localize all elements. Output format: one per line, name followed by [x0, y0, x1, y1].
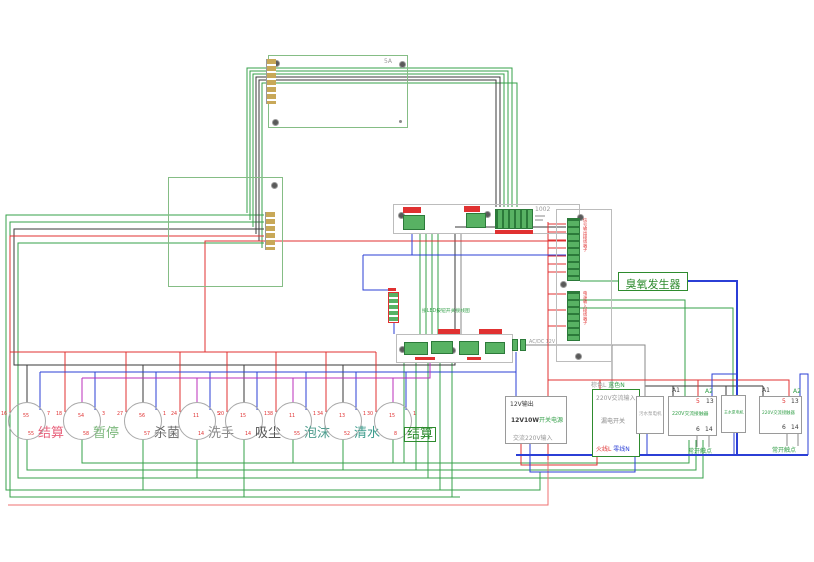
- breaker-name: 漏电开关: [601, 418, 625, 425]
- contactor-t14: 14: [791, 425, 799, 431]
- label-bar: [388, 288, 396, 291]
- pin-number: 15: [240, 414, 246, 419]
- leakage-breaker-box[interactable]: 棕色L 蓝色N 220V交流输入 漏电开关 火线L 零线N: [592, 389, 640, 457]
- button-jiesuan-2[interactable]: 30 15 1 8 结算: [367, 400, 431, 450]
- magenta-wires: [82, 363, 430, 402]
- psu-type: 开关电源: [539, 417, 563, 424]
- pin-number: 20: [218, 412, 224, 417]
- display-board[interactable]: 5A: [268, 55, 408, 128]
- pin-number: 16: [1, 412, 7, 417]
- terminal-strip-1-label: 信号输出接线端子: [582, 218, 586, 252]
- pin-number: 54: [78, 414, 84, 419]
- 12v-terminal-label: AC/DC 12V: [529, 340, 555, 345]
- pin-number: 15: [389, 414, 395, 419]
- main-control-board[interactable]: 1002: [393, 204, 580, 234]
- pin-header[interactable]: [265, 212, 275, 250]
- pin-number: 11: [289, 414, 295, 419]
- silk-mark: [535, 215, 545, 217]
- label-bar: [467, 357, 481, 360]
- contactor-t13: 13: [791, 399, 799, 405]
- pink-wires: [8, 460, 548, 505]
- contactor-a1-label: A1: [672, 388, 680, 394]
- button-label: 结算: [404, 427, 436, 442]
- screw-hole: [575, 353, 582, 360]
- breaker-live-label: 火线L: [596, 446, 611, 453]
- contactor-t6: 6: [782, 425, 786, 431]
- pin-number: 3: [102, 412, 105, 417]
- screw-hole: [560, 281, 567, 288]
- breaker-input-label: 220V交流输入: [596, 395, 636, 402]
- contactor-1-box[interactable]: A1 A2 5 13 220V交流接触器 6 14: [668, 396, 717, 436]
- pin-number: 55: [28, 432, 34, 437]
- contactor-t14: 14: [705, 427, 713, 433]
- pin-number: 13: [339, 414, 345, 419]
- ozone-generator-box[interactable]: 臭氧发生器: [618, 272, 688, 291]
- terminal-block[interactable]: [459, 341, 479, 355]
- contactor-2-box[interactable]: A1 A2 5 13 220V交流接触器 6 14: [759, 396, 802, 434]
- psu-input-label: 交流220V输入: [513, 435, 553, 442]
- pin-number: 14: [198, 432, 204, 437]
- pin-number: 27: [117, 412, 123, 417]
- contactor-t6: 6: [696, 427, 700, 433]
- terminal-strip-2[interactable]: [567, 291, 580, 341]
- pin-number: 55: [23, 414, 29, 419]
- contactor-t5: 5: [782, 399, 786, 405]
- terminal-strip-2-label: 电源输入接线端子: [582, 291, 586, 325]
- mid-connector[interactable]: [388, 292, 399, 323]
- pin-number: 38: [267, 412, 273, 417]
- terminal-board[interactable]: 信号输出接线端子 电源输入接线端子: [556, 209, 612, 362]
- board-tag: 1002: [535, 207, 550, 213]
- terminal-block[interactable]: [404, 342, 428, 355]
- label-bar: [479, 329, 502, 334]
- screw-hole: [271, 182, 278, 189]
- button-label: 暂停: [93, 427, 119, 440]
- breaker-wire-colors: 棕色L 蓝色N: [591, 382, 625, 389]
- screw-hole: [399, 120, 402, 123]
- pin-number: 1: [363, 412, 366, 417]
- 12v-terminal-pin[interactable]: [520, 339, 526, 351]
- label-bar: [415, 357, 435, 360]
- label-bar: [403, 207, 421, 213]
- psu-output-label: 12V输出: [510, 401, 534, 408]
- pin-number: 34: [317, 412, 323, 417]
- label-bar: [438, 329, 460, 334]
- pin-number: 58: [83, 432, 89, 437]
- label-bar: [495, 230, 533, 234]
- pin-number: 57: [144, 432, 150, 437]
- contactor-name: 220V交流接触器: [762, 411, 795, 415]
- terminal-strip-1[interactable]: [567, 218, 580, 281]
- psu-rating: 12V10W: [511, 417, 539, 424]
- pin-number: 24: [171, 412, 177, 417]
- pin-number: 52: [344, 432, 350, 437]
- terminal-block[interactable]: [466, 213, 486, 228]
- main-pump-motor-box[interactable]: 主水泵电机: [721, 395, 746, 433]
- board-tag: 5A: [384, 59, 392, 65]
- contactor-t13: 13: [706, 399, 714, 405]
- button-wiring-board[interactable]: [396, 334, 513, 363]
- terminal-block[interactable]: [403, 215, 425, 230]
- breaker-live-color: 棕色L: [591, 382, 606, 389]
- ozone-generator-label: 臭氧发生器: [626, 278, 681, 291]
- pin-number: 56: [139, 414, 145, 419]
- pin-number: 14: [245, 432, 251, 437]
- button-wiring-title: 接LED按钮开关接线图: [422, 309, 470, 314]
- terminal-block[interactable]: [485, 342, 505, 354]
- contactor-t5: 5: [696, 399, 700, 405]
- pin-number: 18: [56, 412, 62, 417]
- drain-pump-motor-box[interactable]: 污水泵电机: [636, 396, 664, 434]
- breaker-bottom-labels: 火线L 零线N: [596, 446, 630, 453]
- main-pump-motor-label: 主水泵电机: [724, 410, 744, 415]
- pin-header[interactable]: [266, 59, 276, 104]
- silk-mark: [535, 219, 543, 221]
- contactor-a2-label: A2: [705, 389, 713, 395]
- terminal-block[interactable]: [431, 341, 453, 354]
- contactor-1-contact-label: 常开触点: [688, 449, 712, 455]
- contactor-2-contact-label: 常开触点: [772, 448, 796, 454]
- drain-pump-motor-label: 污水泵电机: [639, 411, 662, 416]
- schematic-canvas: 5A 1002 信号输出接线端子 电源输入接线端子 臭氧发生器: [0, 0, 814, 562]
- pin-header[interactable]: [495, 209, 533, 229]
- contactor-a1-label: A1: [762, 388, 770, 394]
- 12v-terminal-pin[interactable]: [512, 339, 518, 351]
- pin-number: 8: [394, 432, 397, 437]
- psu-name: 12V10W开关电源: [511, 417, 563, 424]
- pin-number: 30: [367, 412, 373, 417]
- label-bar: [464, 206, 480, 212]
- button-zanting[interactable]: 18 54 3 58 暂停: [56, 400, 120, 450]
- pin-number: 7: [47, 412, 50, 417]
- contactor-name: 220V交流接触器: [672, 412, 708, 417]
- contactor-a2-label: A2: [793, 389, 801, 395]
- pin-number: 1: [413, 412, 416, 417]
- pin-number: 55: [294, 432, 300, 437]
- left-board[interactable]: [168, 177, 283, 287]
- pin-number: 1: [313, 412, 316, 417]
- breaker-neutral-label: 零线N: [613, 446, 630, 453]
- screw-hole: [399, 61, 406, 68]
- breaker-neutral-color: 蓝色N: [608, 382, 625, 389]
- screw-hole: [272, 119, 279, 126]
- pin-number: 11: [193, 414, 199, 419]
- power-supply-box[interactable]: 12V输出 12V10W开关电源 交流220V输入: [505, 396, 567, 444]
- pin-number: 1: [163, 412, 166, 417]
